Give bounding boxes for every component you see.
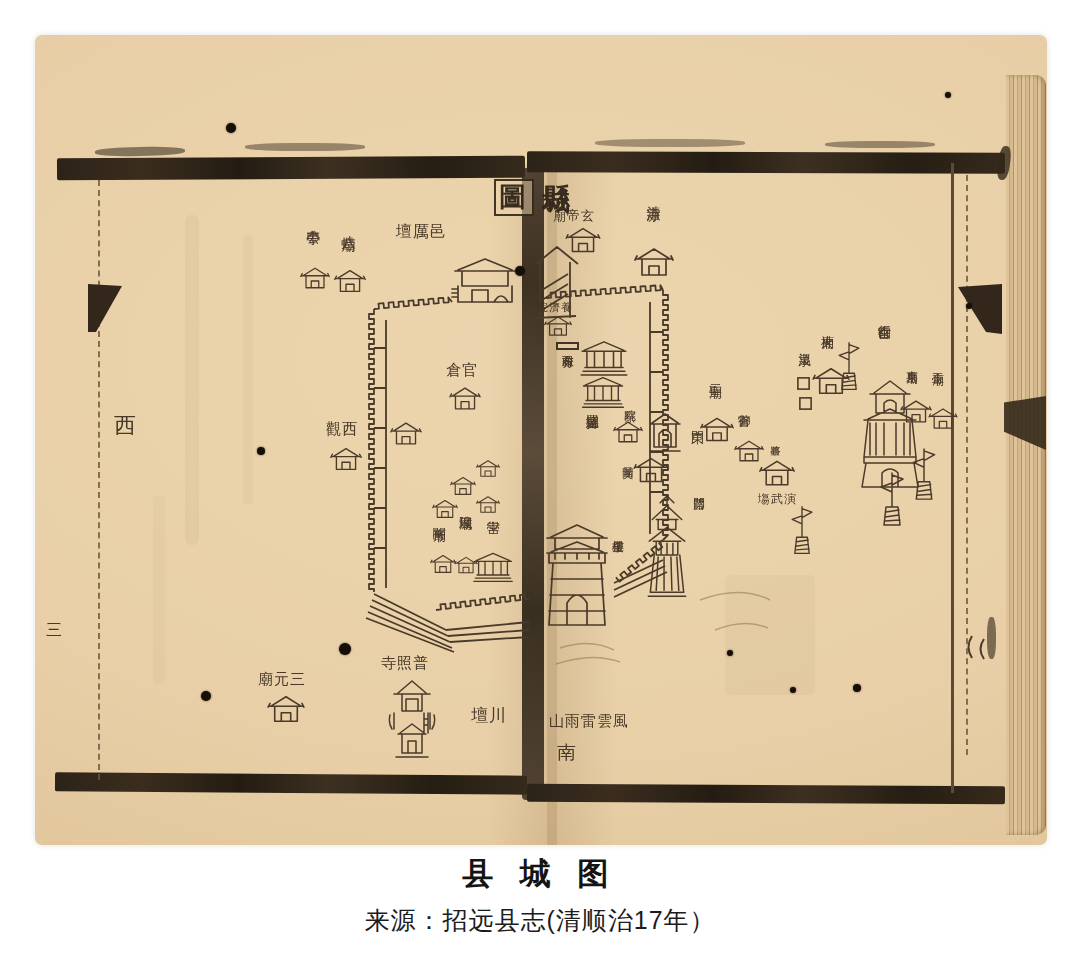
ink-smudge bbox=[95, 146, 185, 157]
compass-west: 西 bbox=[114, 414, 137, 438]
book-fold-gutter bbox=[522, 168, 544, 800]
wormhole bbox=[790, 687, 796, 693]
wormhole bbox=[727, 650, 733, 656]
figure-caption: 县 城 图 来源：招远县志(清顺治17年） bbox=[0, 853, 1080, 937]
frame-left-rule bbox=[98, 180, 100, 780]
label-yi-li-tan: 壇厲邑 bbox=[396, 223, 447, 240]
frame-top-left-page bbox=[57, 156, 525, 180]
wormhole bbox=[226, 123, 236, 133]
folio-number: 三 bbox=[46, 621, 63, 638]
frame-right-outer-rule bbox=[966, 175, 968, 755]
caption-source: 来源：招远县志(清顺治17年） bbox=[0, 904, 1080, 937]
caption-title: 县 城 图 bbox=[0, 853, 1080, 895]
wormhole bbox=[853, 684, 861, 692]
label-xuan-di-miao: 廟帝玄 bbox=[553, 209, 595, 223]
label-yang-ji-yuan: 院濟養 bbox=[537, 302, 573, 314]
ink-smudge bbox=[595, 139, 745, 147]
ink-smudge bbox=[987, 617, 996, 659]
frame-right-rule bbox=[951, 163, 954, 793]
wormhole bbox=[201, 691, 211, 701]
label-guan-cang: 倉官 bbox=[446, 362, 478, 378]
wormhole bbox=[945, 92, 951, 98]
frame-bottom-left-page bbox=[55, 772, 527, 794]
wormhole bbox=[515, 266, 525, 276]
book-scan-photo bbox=[35, 35, 1047, 845]
map-title-xiancheng: 縣城 bbox=[541, 162, 570, 168]
label-san-yuan-miao: 廟元三 bbox=[258, 671, 306, 687]
screenshot-root: 圖縣城壇厲邑八蜡廟申公亭倉官觀西西三學宮城隍廟闗帝廟廟元三寺照普壇川廟帝玄清凉寺… bbox=[0, 0, 1080, 959]
bleed-through bbox=[725, 575, 815, 695]
bleed-through bbox=[153, 495, 165, 685]
bleed-through bbox=[185, 215, 199, 545]
label-bu-zheng-fen-si: 布政分司 bbox=[556, 342, 579, 350]
label-xi-guan: 觀西 bbox=[326, 421, 358, 437]
compass-south: 南 bbox=[557, 743, 577, 764]
wormhole bbox=[966, 303, 972, 309]
map-title-tu: 圖 bbox=[494, 179, 534, 216]
ink-smudge bbox=[825, 141, 935, 148]
wormhole bbox=[339, 643, 351, 655]
ink-smudge bbox=[245, 143, 365, 151]
label-yan-wu-chang: 塲武演 bbox=[758, 493, 797, 506]
label-feng-yun-lei-yu-shan: 山雨雷雲風 bbox=[549, 713, 629, 729]
label-pu-zhao-si: 寺照普 bbox=[381, 655, 429, 671]
bleed-through bbox=[243, 235, 253, 505]
frame-bottom-right-page bbox=[527, 784, 1005, 805]
page-edge-stack bbox=[1006, 75, 1046, 835]
wormhole bbox=[257, 447, 265, 455]
label-chuan-tan: 壇川 bbox=[471, 707, 507, 725]
frame-top-right-page bbox=[527, 151, 1005, 174]
